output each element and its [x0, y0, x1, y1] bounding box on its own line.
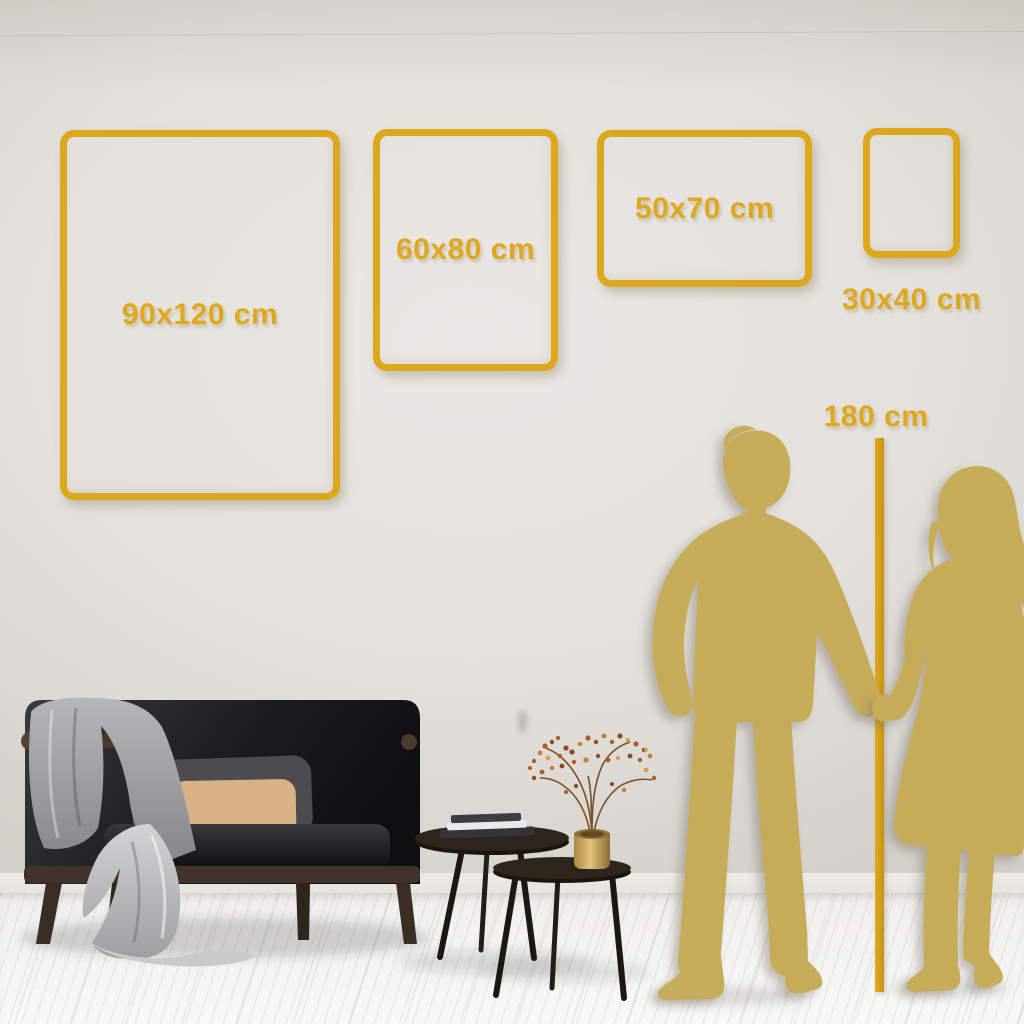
sofa-leg	[296, 883, 310, 940]
coffee-table-small	[480, 857, 650, 998]
tabletop	[493, 857, 631, 879]
size-guide-poster: 90x120 cm 60x80 cm 50x70 cm 30x40 cm 180…	[0, 0, 1024, 1024]
man-leg	[772, 716, 789, 958]
books	[440, 813, 534, 839]
woman-silhouette	[872, 466, 1024, 992]
woman-body	[885, 555, 1024, 856]
man-leg	[699, 716, 716, 962]
woman-leg	[976, 850, 982, 952]
man-body	[652, 511, 880, 722]
plant-stem	[540, 778, 590, 832]
vase	[574, 829, 610, 869]
plant-stem	[594, 779, 652, 832]
room-scene	[0, 0, 1024, 1024]
woman-head	[947, 477, 1001, 539]
wood-rail	[24, 866, 420, 883]
armrest-knob-right	[401, 734, 417, 750]
held-hands	[872, 694, 896, 722]
woman-leg	[941, 848, 944, 962]
table-leg	[440, 850, 462, 957]
coffee-table-large	[400, 813, 590, 973]
vase-body	[574, 834, 610, 869]
dried-plant	[528, 733, 656, 832]
table-leg	[481, 852, 487, 950]
berries	[528, 733, 656, 794]
man-head	[723, 430, 790, 522]
man-silhouette	[652, 426, 880, 1000]
